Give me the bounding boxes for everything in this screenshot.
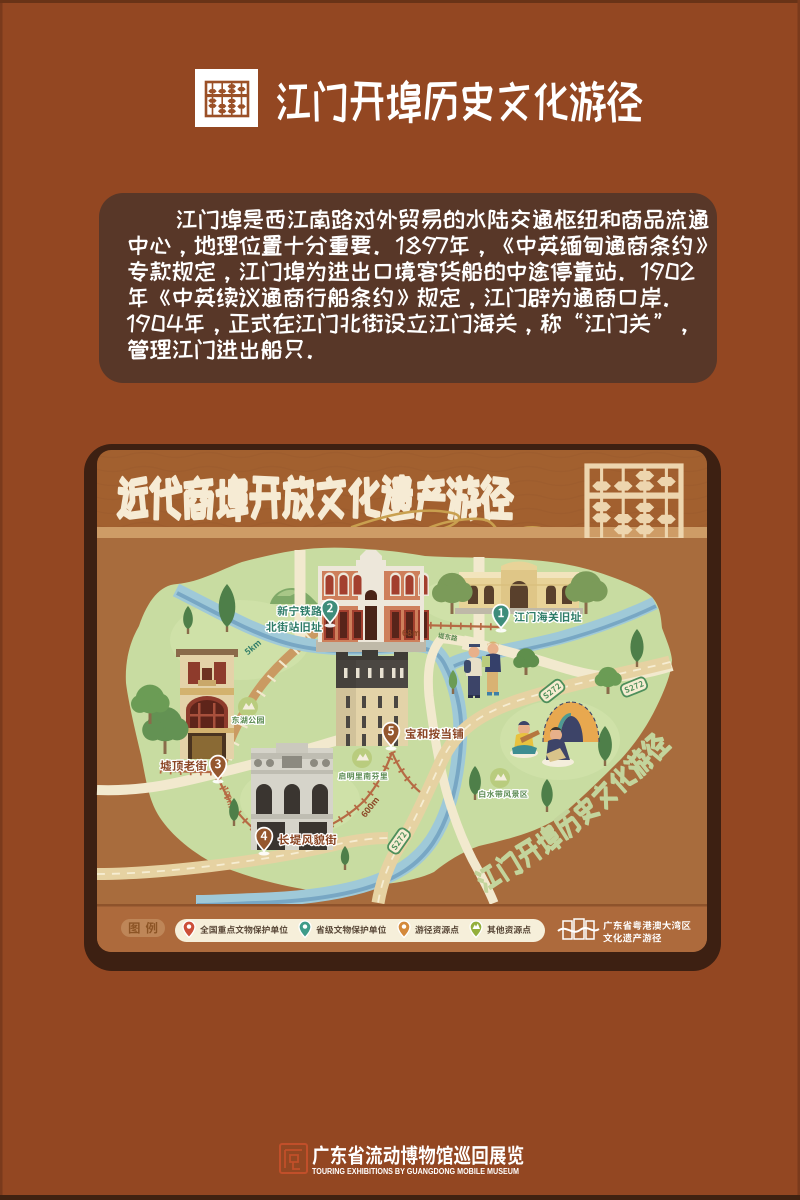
svg-text:TOURING EXHIBITIONS BY GUANGDO: TOURING EXHIBITIONS BY GUANGDONG MOBILE …	[312, 1167, 519, 1176]
